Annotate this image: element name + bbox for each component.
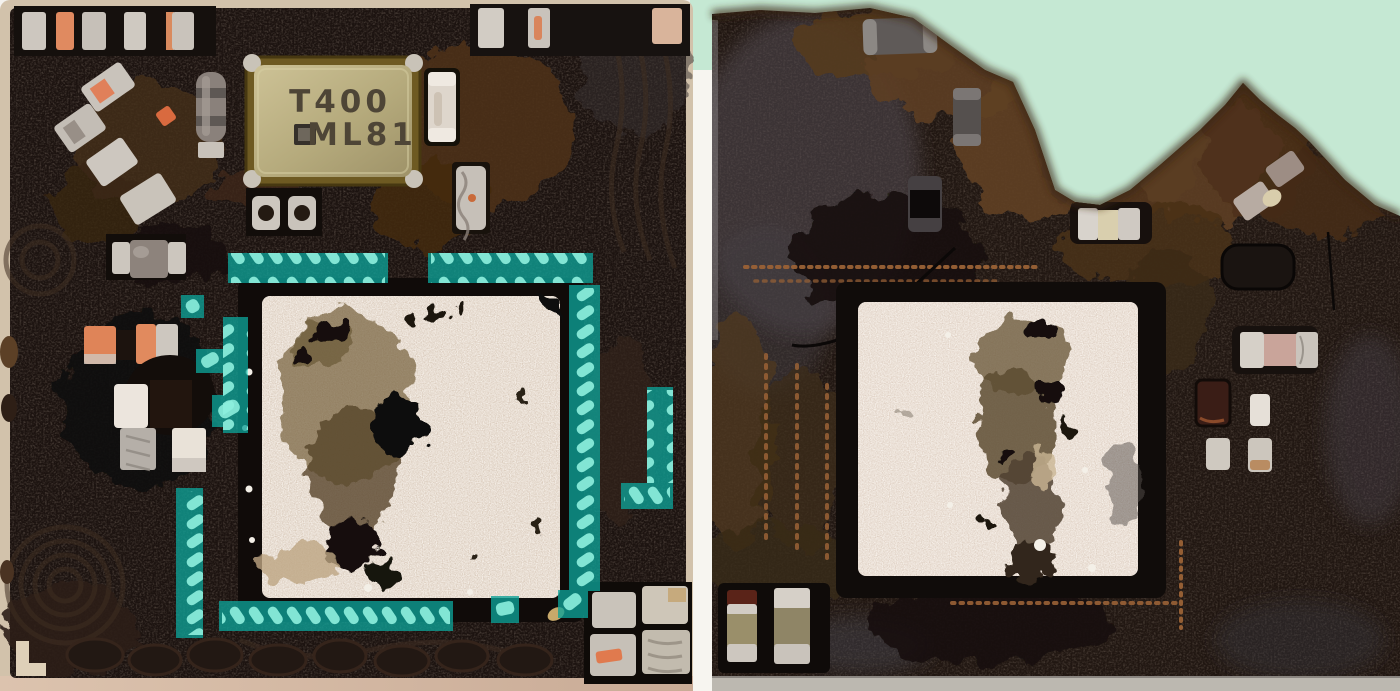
orange-pad bbox=[56, 12, 74, 50]
silver-pad-component bbox=[120, 428, 156, 470]
solder-pad bbox=[82, 12, 106, 50]
left-board: T400 ML81 bbox=[0, 0, 693, 691]
crystal-marking-line1: T400 bbox=[289, 84, 391, 120]
gray-capacitor-vertical bbox=[196, 72, 226, 158]
pink-capacitor bbox=[1232, 326, 1318, 374]
solder-pad bbox=[478, 8, 504, 48]
bottom-left-component-pair bbox=[718, 583, 830, 673]
tan-pad bbox=[652, 8, 682, 44]
solder-pad bbox=[172, 12, 194, 50]
white-capacitor bbox=[424, 68, 460, 146]
charred-blob-component bbox=[1222, 245, 1294, 289]
silver-component-vertical bbox=[452, 162, 490, 240]
orange-fleck bbox=[534, 16, 542, 40]
crystal-marking-line2: ML81 bbox=[307, 117, 417, 153]
right-board-bottom-substrate bbox=[712, 677, 1400, 691]
crystal-oscillator: T400 ML81 bbox=[243, 54, 423, 188]
white-end-component bbox=[1070, 202, 1152, 244]
solder-pad bbox=[22, 12, 46, 50]
scene-canvas: T400 ML81 bbox=[0, 0, 1400, 691]
dark-component-vertical bbox=[953, 88, 981, 146]
gray-capacitor-horizontal bbox=[106, 234, 186, 280]
burned-component bbox=[908, 176, 942, 232]
pad-pair bbox=[246, 188, 322, 236]
panel-gap bbox=[693, 70, 712, 691]
die-attach-pad-right bbox=[836, 282, 1166, 598]
solder-pad bbox=[124, 12, 146, 50]
right-board-left-edge bbox=[712, 20, 718, 340]
photo-burned-circuit-boards: T400 ML81 bbox=[0, 0, 1400, 691]
white-pad-component bbox=[114, 384, 148, 428]
die-attach-pad-left bbox=[238, 278, 584, 622]
dark-red-component bbox=[1196, 380, 1230, 426]
white-chip bbox=[1250, 394, 1270, 426]
silver-chip bbox=[1206, 438, 1230, 470]
silver-chip-copper bbox=[1248, 438, 1272, 472]
